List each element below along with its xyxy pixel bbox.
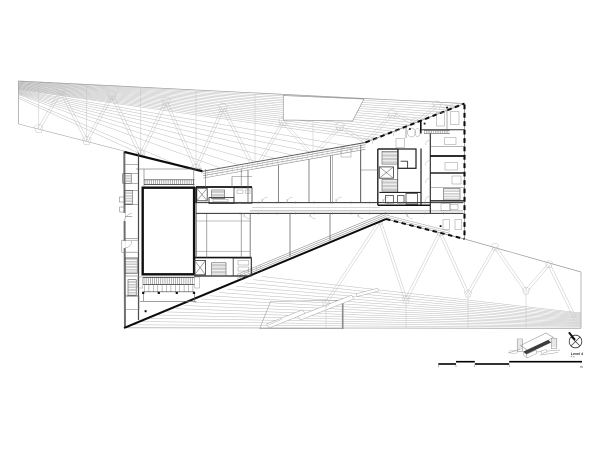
- svg-text:m: m: [580, 365, 583, 369]
- svg-text:4 m: 4 m: [571, 356, 575, 359]
